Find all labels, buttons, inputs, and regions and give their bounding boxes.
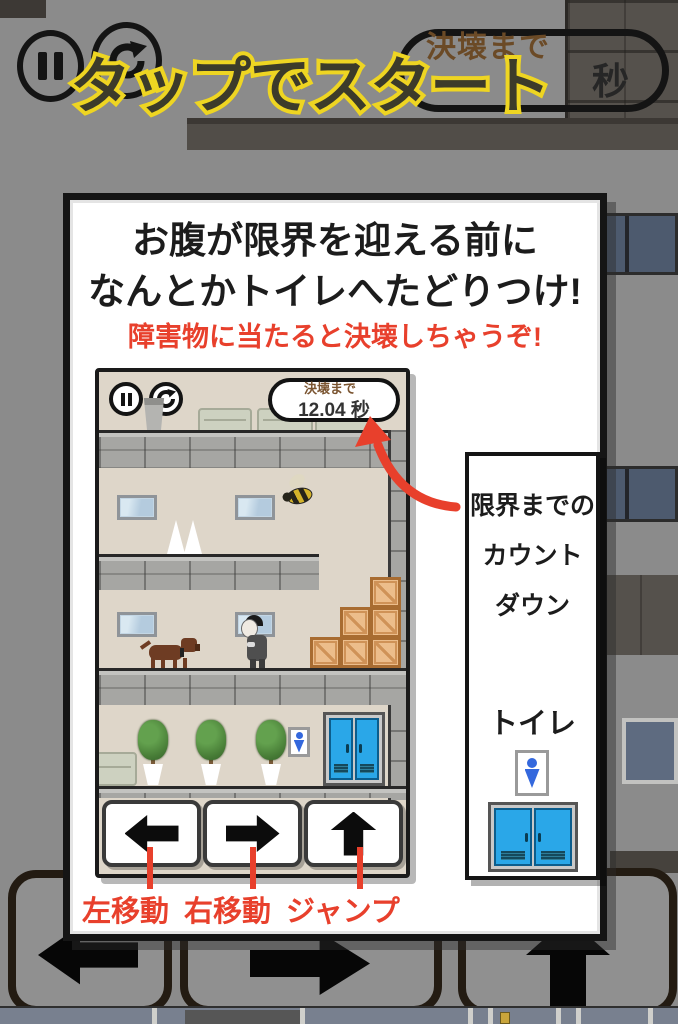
wasp-icon: [279, 475, 318, 511]
plant-icon: [195, 720, 227, 786]
toilet-door-icon: [488, 802, 578, 872]
callout-arrow-icon: [352, 415, 464, 525]
couch-icon: [95, 752, 137, 786]
toilet-label: トイレ: [469, 700, 596, 742]
pause-icon: [38, 52, 47, 80]
pause-icon: [109, 382, 143, 416]
control-labels: 左移動 右移動 ジャンプ: [82, 888, 462, 930]
tutorial-card: お腹が限界を迎える前に なんとかトイレへたどりつけ! 障害物に当たると決壊しちゃ…: [63, 193, 607, 941]
spike-icon: [184, 520, 202, 554]
building-window: [622, 718, 678, 784]
up-arrow-icon: [327, 812, 381, 856]
tap-to-start-overlay[interactable]: タップでスタート: [70, 36, 630, 125]
floor: [99, 786, 406, 798]
tutorial-warning: 障害物に当たると決壊しちゃうぞ!: [70, 315, 600, 354]
callout-line1: 限界までの: [469, 486, 596, 522]
tutorial-heading-line1: お腹が限界を迎える前に: [70, 210, 600, 264]
spike-icon: [167, 520, 185, 554]
crate-icon: [370, 637, 401, 668]
window: [117, 495, 157, 520]
building-window: [600, 466, 678, 522]
floor: [99, 668, 406, 705]
jump-label: ジャンプ: [286, 888, 400, 930]
game-screen[interactable]: 決壊まで 秒 タップでスタート お腹が限界を迎える前に なんとかトイレへたどりつ…: [0, 0, 678, 1024]
pointer-line: [250, 847, 256, 889]
tutorial-heading-line2: なんとかトイレへたどりつけ!: [70, 261, 600, 315]
pointer-line: [357, 847, 363, 889]
building-window: [600, 213, 678, 275]
window: [117, 612, 157, 637]
crate-icon: [340, 637, 371, 668]
pointer-line: [147, 847, 153, 889]
window: [235, 495, 275, 520]
building-lower-floor: [0, 1006, 678, 1024]
building-band: [600, 575, 678, 655]
crate-icon: [310, 637, 341, 668]
callout-line2: カウント: [469, 536, 596, 572]
trash-can-icon: [143, 398, 165, 434]
dog-icon: [137, 638, 200, 670]
plant-icon: [137, 720, 169, 786]
roof-corner: [0, 0, 46, 18]
toilet-sign-icon: [288, 727, 310, 757]
mini-jump-button: [304, 800, 403, 867]
move-left-label: 左移動: [82, 888, 169, 930]
toilet-door-icon: [323, 712, 385, 786]
player-character: [238, 615, 275, 668]
move-right-label: 右移動: [184, 888, 271, 930]
crate-icon: [370, 577, 401, 608]
toilet-sign-icon: [515, 750, 549, 796]
callout-box: 限界までの カウント ダウン トイレ: [465, 452, 600, 880]
small-object: [500, 1012, 510, 1024]
plant-icon: [255, 720, 287, 786]
crate-icon: [340, 607, 371, 638]
floor: [99, 554, 319, 590]
crate-icon: [370, 607, 401, 638]
callout-line3: ダウン: [469, 586, 596, 622]
